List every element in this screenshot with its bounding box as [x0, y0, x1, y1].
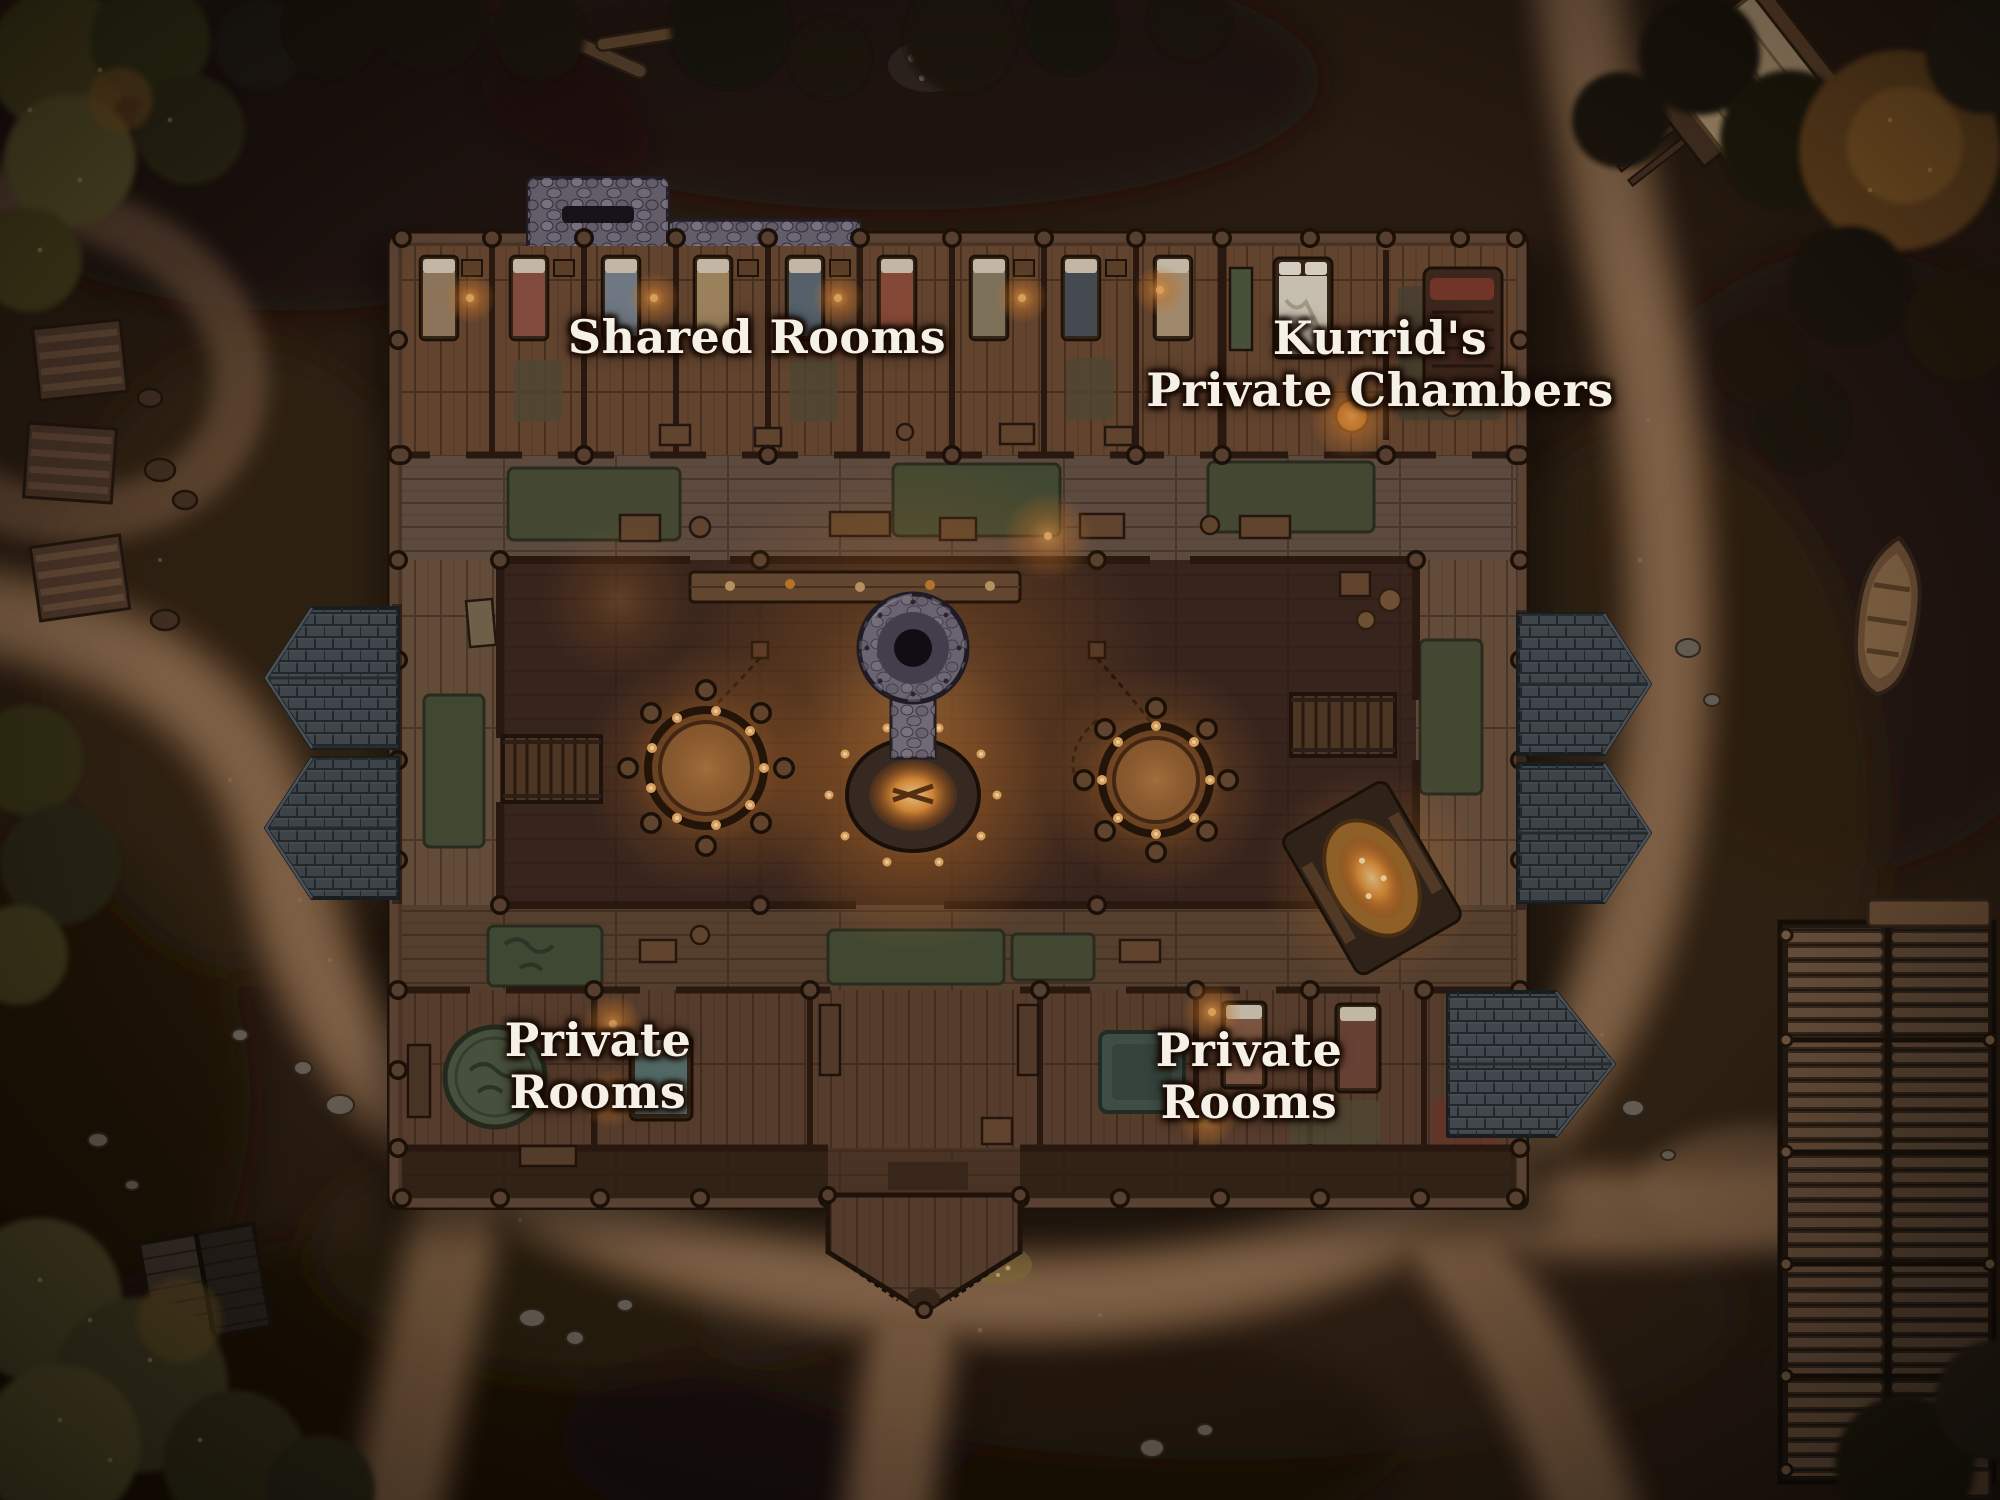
battle-map-image: Shared Rooms Kurrid's Private Chambers P…	[0, 0, 2000, 1500]
vignette	[0, 0, 2000, 1500]
map-artwork	[0, 0, 2000, 1500]
